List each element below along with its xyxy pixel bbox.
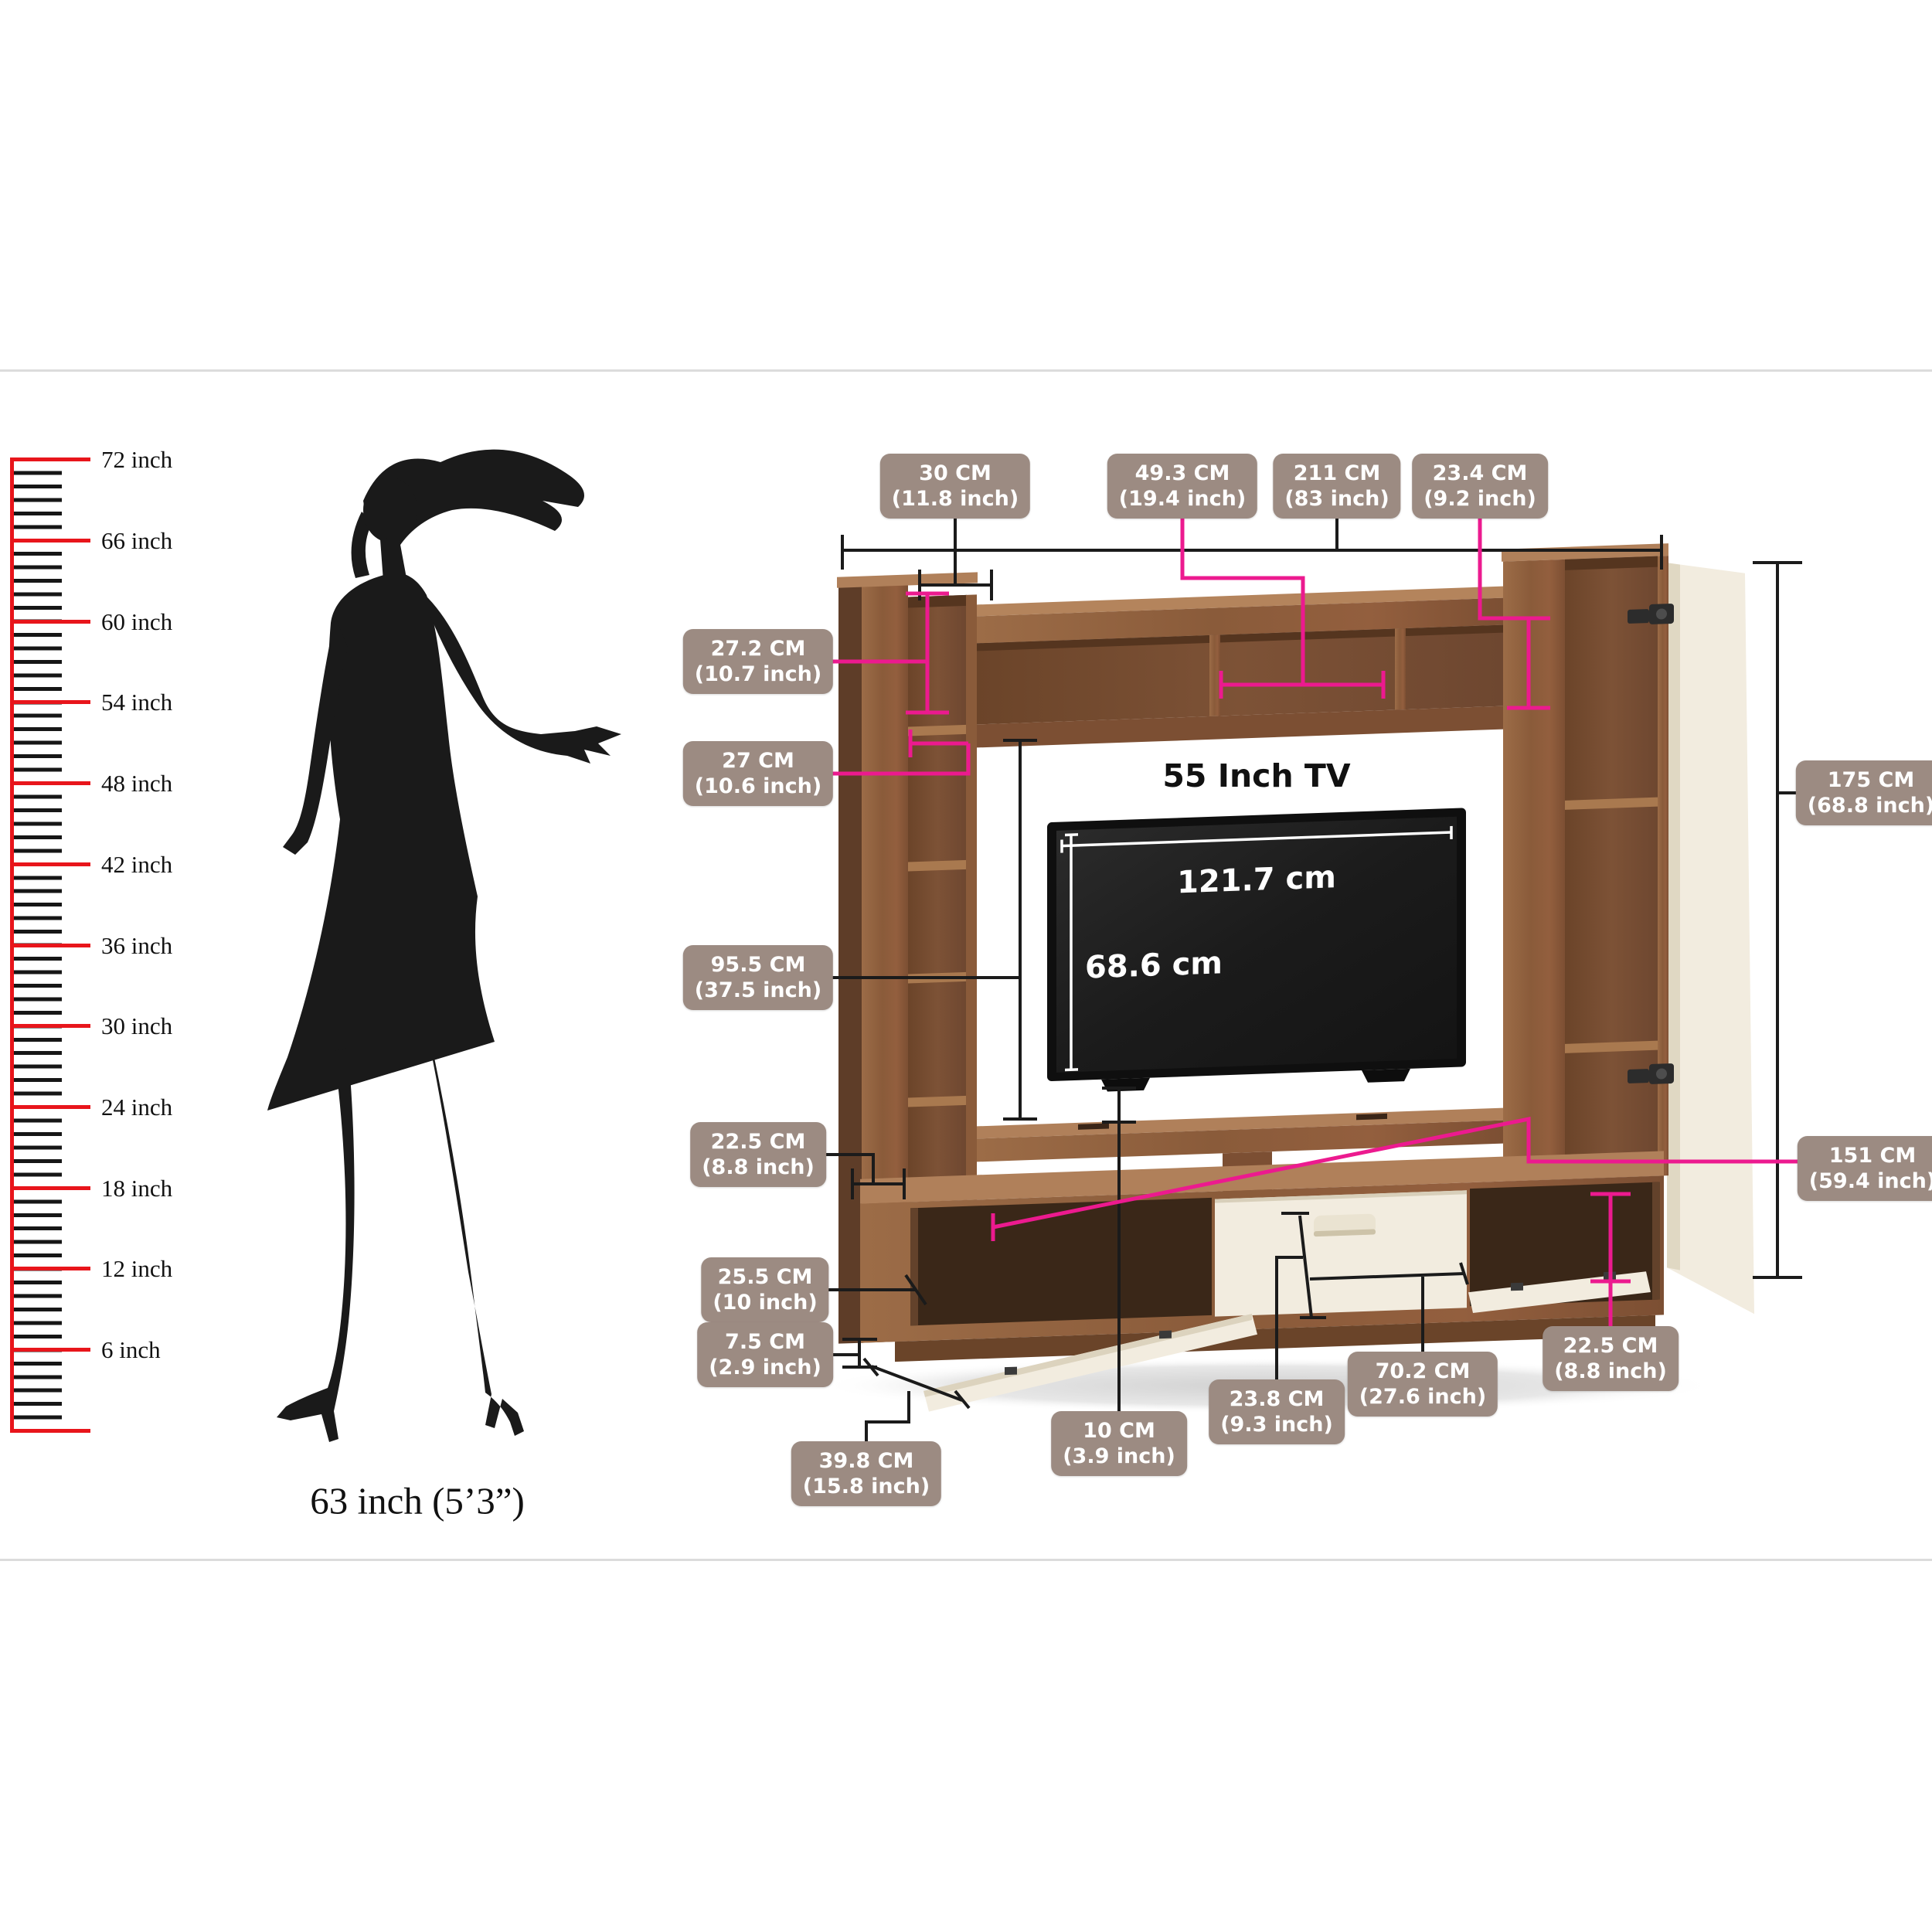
dim-label-base-depth: 39.8 CM(15.8 inch) xyxy=(791,1441,941,1506)
dim-label-overall-height: 175 CM(68.8 inch) xyxy=(1796,760,1932,825)
left-tower-interior xyxy=(908,595,967,1202)
dim-label-right-cubby: 23.4 CM(9.2 inch) xyxy=(1412,454,1548,519)
flip-door-right-hinge-1 xyxy=(1511,1283,1523,1291)
tv-size-caption: 55 Inch TV xyxy=(1162,757,1351,794)
ledge-cable-slot-left xyxy=(1078,1123,1109,1129)
silhouette-right-arm xyxy=(423,594,621,764)
base-left-compartment-wall xyxy=(910,1208,918,1325)
flip-door-left-hinge-2 xyxy=(1159,1331,1172,1339)
silhouette-right-leg xyxy=(430,1043,524,1436)
ledge-cable-slot-right xyxy=(1356,1114,1387,1120)
dim-label-gap-height: 10 CM(3.9 inch) xyxy=(1051,1411,1187,1476)
base-right-compartment-wall xyxy=(1652,1182,1660,1300)
figure-height-caption: 63 inch (5’3”) xyxy=(310,1479,525,1523)
silhouette-left-leg xyxy=(277,1048,355,1442)
dim-label-top-depth: 30 CM(11.8 inch) xyxy=(880,454,1030,519)
dim-label-cubby-width: 49.3 CM(19.4 inch) xyxy=(1107,454,1257,519)
drawer-front xyxy=(1215,1190,1467,1316)
flip-door-left-hinge-1 xyxy=(1005,1367,1017,1376)
left-tower-edge xyxy=(966,594,977,1199)
left-tower-side xyxy=(838,583,863,1344)
right-tower-stile xyxy=(1503,560,1565,1182)
dim-label-drawer-height: 23.8 CM(9.3 inch) xyxy=(1209,1379,1345,1444)
product-dimension-diagram: 72 inch 66 inch 60 inch 54 inch 48 inch … xyxy=(0,0,1932,1932)
dim-label-tv-opening: 95.5 CM(37.5 inch) xyxy=(683,945,833,1010)
silhouette-head xyxy=(363,478,417,543)
diagram-artwork: 121.7 cm 68.6 cm xyxy=(0,0,1932,1932)
tv-foot-right xyxy=(1362,1069,1410,1083)
dim-label-left-compartment: 27.2 CM(10.7 inch) xyxy=(683,629,833,694)
tv-screen xyxy=(1056,817,1457,1073)
dim-label-plinth-height: 7.5 CM(2.9 inch) xyxy=(697,1322,833,1387)
dim-label-drawer-width: 70.2 CM(27.6 inch) xyxy=(1348,1352,1498,1417)
dim-label-right-compartment: 22.5 CM(8.8 inch) xyxy=(1543,1326,1679,1391)
left-tower-interior-shadow xyxy=(908,595,967,608)
tv-foot-left xyxy=(1101,1078,1150,1092)
dim-label-tower-depth: 22.5 CM(8.8 inch) xyxy=(690,1122,826,1187)
bridge-divider-2 xyxy=(1395,628,1406,709)
dim-label-inner-width: 151 CM(59.4 inch) xyxy=(1798,1136,1932,1201)
tv-height-value: 68.6 cm xyxy=(1085,945,1223,985)
tv-width-value: 121.7 cm xyxy=(1177,859,1336,900)
dim-label-left-shelf: 27 CM(10.6 inch) xyxy=(683,741,833,806)
dim-label-base-height: 25.5 CM(10 inch) xyxy=(701,1257,828,1322)
silhouette-neck xyxy=(380,536,406,581)
base-left-compartment xyxy=(910,1198,1212,1326)
dim-label-overall-width: 211 CM(83 inch) xyxy=(1273,454,1400,519)
right-tower-interior xyxy=(1565,556,1658,1179)
right-door-edge xyxy=(1667,563,1680,1271)
woman-silhouette xyxy=(267,450,621,1442)
bridge-divider-1 xyxy=(1209,634,1220,716)
